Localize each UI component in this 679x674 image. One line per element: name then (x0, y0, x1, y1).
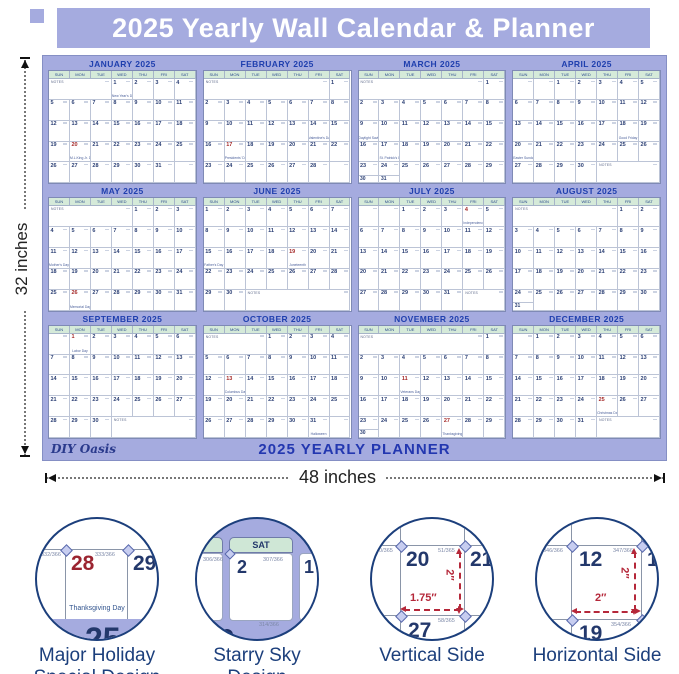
date-number: 6 (92, 228, 95, 234)
day-of-week-header: TUE (555, 198, 576, 206)
date-cell: 18 (267, 248, 288, 269)
measure-arrow-icon (571, 608, 577, 614)
date-cell: 29 (618, 290, 639, 311)
date-cell: 30 (639, 290, 660, 311)
empty-cell (175, 162, 196, 183)
date-cell: 11 (133, 355, 154, 376)
date-cell: 27 (288, 162, 309, 183)
date-cell: 1 (330, 79, 351, 100)
dimension-tick (20, 455, 30, 457)
date-cell: 8 (484, 355, 505, 376)
date-number: 24 (381, 418, 387, 424)
date-number: 6 (289, 100, 292, 106)
notes-label: NOTES (515, 207, 528, 211)
date-number: 24 (381, 163, 387, 169)
day-of-week-header: SAT (484, 198, 505, 206)
date-number: 6 (226, 355, 229, 361)
date-number: 9 (134, 100, 137, 106)
date-number: 13 (444, 121, 450, 127)
date-cell: 27 (513, 162, 534, 183)
date-number: 25 (402, 163, 408, 169)
date-number: 1 (268, 334, 271, 340)
date-cell: 21 (379, 269, 400, 290)
date-number: 20 (641, 376, 647, 382)
date-number: 13 (310, 228, 316, 234)
notes-cell: NOTES (246, 290, 351, 311)
date-cell: 22 (70, 396, 91, 417)
date-cell: 28 (112, 290, 133, 311)
measure-arrow-icon (631, 548, 637, 554)
calendar-poster: JANUARY 2025SUNMONTUEWEDTHUFRISATNOTES1N… (42, 55, 667, 461)
date-cell: 2 (421, 206, 442, 227)
date-cell: 6 (442, 355, 463, 376)
date-number: 7 (515, 355, 518, 361)
date-number: 3 (515, 228, 518, 234)
date-cell: 12 (154, 355, 175, 376)
cell-width-label: 1.75″ (410, 592, 437, 604)
arrow-down-icon (21, 446, 29, 454)
date-number: 18 (176, 121, 182, 127)
measure-arrow-icon (456, 548, 462, 554)
partial-date-number: 25 (85, 621, 121, 641)
date-number: 11 (331, 355, 337, 361)
date-number: 17 (226, 142, 232, 148)
date-cell: 8 (267, 355, 288, 376)
detail-circle-horizontal-side: 346/366 347/366 354/366 12 13 19 2″ 2″ (535, 517, 659, 641)
date-number: 25 (402, 418, 408, 424)
date-number: 10 (310, 355, 316, 361)
date-cell: 17 (309, 375, 330, 396)
date-number: 26 (289, 269, 295, 275)
date-cell: 9 (421, 227, 442, 248)
day-of-week-header: MON (534, 198, 555, 206)
day-of-week-header: SAT (639, 326, 660, 334)
date-number: 20 (444, 397, 450, 403)
date-number: 31 (444, 290, 450, 296)
date-number: 25 (268, 269, 274, 275)
day-of-week-header: TUE (246, 71, 267, 79)
date-cell: 14 (513, 375, 534, 396)
date-number: 16 (360, 397, 366, 403)
date-cell: 5 (639, 79, 660, 100)
empty-cell (359, 206, 380, 227)
date-cell: 17 (597, 121, 618, 142)
date-number: 21 (465, 142, 471, 148)
date-number: 23 (92, 397, 98, 403)
date-cell: 11 (267, 227, 288, 248)
date-number: 1 (113, 80, 116, 86)
date-cell: 12 (484, 227, 505, 248)
holiday-name-label: Columbus Day (225, 390, 245, 394)
date-cell: 4 (246, 100, 267, 121)
date-number: 25 (465, 269, 471, 275)
day-of-week-header: TUE (246, 198, 267, 206)
notes-label: NOTES (465, 291, 478, 295)
date-cell: 6 (225, 355, 246, 376)
date-number: 8 (134, 228, 137, 234)
date-cell: 31 (442, 290, 463, 311)
date-cell: 17 (154, 121, 175, 142)
holiday-name-label: M.L.King Jr. Day (70, 156, 90, 160)
date-number: 1 (486, 80, 489, 86)
date-number: 29 (71, 418, 77, 424)
notes-cell: NOTES (112, 417, 196, 438)
date-cell: 5 (49, 100, 70, 121)
date-cell: 4 (49, 227, 70, 248)
date-cell: 28 (597, 290, 618, 311)
date-number: 20 (406, 548, 429, 572)
date-number: 21 (536, 142, 542, 148)
date-number: 16 (641, 249, 647, 255)
date-cell: 7 (463, 355, 484, 376)
date-number: 3 (247, 207, 250, 213)
date-cell: 15 (484, 375, 505, 396)
date-number: 2 (360, 100, 363, 106)
date-number: 30 (423, 290, 429, 296)
date-cell: 19 (484, 248, 505, 269)
date-number: 3 (176, 207, 179, 213)
month-title: JUNE 2025 (203, 185, 352, 197)
date-number: 18 (51, 269, 57, 275)
date-number: 16 (205, 142, 211, 148)
feature-label: Starry Sky Design (182, 645, 332, 674)
date-number: 7 (465, 100, 468, 106)
date-number: 12 (579, 548, 602, 572)
product-image: 2025 Yearly Wall Calendar & Planner 32 i… (0, 0, 679, 674)
date-number: 27 (92, 290, 98, 296)
date-cell: 14 (379, 248, 400, 269)
date-cell: 7 (513, 355, 534, 376)
date-cell: 22 (484, 142, 505, 163)
date-number: 17 (444, 249, 450, 255)
date-cell: 21 (463, 396, 484, 417)
month-title: FEBRUARY 2025 (203, 58, 352, 70)
day-of-week-header: FRI (309, 326, 330, 334)
day-of-week-header: SUN (204, 198, 225, 206)
cell-width-label: 2″ (595, 592, 606, 604)
date-cell: 30 (555, 417, 576, 438)
date-cell: 26 (267, 162, 288, 183)
date-cell: 15 (330, 121, 351, 142)
day-of-year-label: 58/365 (438, 618, 455, 624)
date-number: 10 (444, 228, 450, 234)
grid-line (37, 549, 157, 550)
date-cell: 12 (204, 375, 225, 396)
date-cell: 13Columbus Day (225, 375, 246, 396)
date-number: 5 (641, 80, 644, 86)
date-number: 17 (176, 249, 182, 255)
holiday-date-number: 28 (71, 552, 94, 576)
date-number: 2 (237, 557, 247, 578)
date-cell: 21 (534, 142, 555, 163)
date-cell: 1 (204, 206, 225, 227)
grid-line (372, 615, 492, 616)
date-number: 9 (360, 376, 363, 382)
date-number: 16 (92, 376, 98, 382)
date-number: 8 (536, 355, 539, 361)
date-cell: 15 (618, 248, 639, 269)
date-number: 2 (360, 355, 363, 361)
day-of-week-header: FRI (154, 198, 175, 206)
day-of-week-header: SUN (359, 326, 380, 334)
date-cell: 25 (330, 396, 351, 417)
day-of-week-header: SUN (359, 71, 380, 79)
month-block: FEBRUARY 2025SUNMONTUEWEDTHUFRISATNOTES1… (203, 58, 352, 184)
date-cell: 9Daylight Saving (359, 121, 380, 142)
date-number: 13 (71, 121, 77, 127)
date-cell: 28 (534, 162, 555, 183)
date-number: 26 (71, 290, 77, 296)
month-block: SEPTEMBER 2025SUNMONTUEWEDTHUFRISAT1Labo… (48, 313, 197, 439)
date-cell: 19 (618, 375, 639, 396)
date-cell: 20 (91, 269, 112, 290)
date-number: 1 (620, 207, 623, 213)
date-cell: 27 (576, 290, 597, 311)
date-number: 15 (331, 121, 337, 127)
date-cell: 26 (421, 417, 442, 438)
month-grid: SUNMONTUEWEDTHUFRISAT1234567891011121314… (203, 197, 352, 311)
date-number: 22 (113, 142, 119, 148)
date-cell: 11 (175, 100, 196, 121)
date-number: 4 (402, 355, 405, 361)
date-number: 29 (113, 163, 119, 169)
date-cell: 18Good Friday (618, 121, 639, 142)
date-cell: 14 (91, 121, 112, 142)
date-cell: 18 (400, 142, 421, 163)
date-cell: 2431 (513, 290, 534, 311)
date-number: 20 (71, 142, 77, 148)
date-cell: 12 (421, 375, 442, 396)
measure-arrow-icon (458, 606, 464, 612)
date-cell: 15 (555, 121, 576, 142)
day-of-week-header: THU (288, 71, 309, 79)
date-cell: 1 (400, 206, 421, 227)
day-of-week-header: FRI (309, 71, 330, 79)
date-cell: 8 (330, 100, 351, 121)
date-cell: 11 (463, 227, 484, 248)
product-header-banner: 2025 Yearly Wall Calendar & Planner (57, 8, 650, 48)
date-cell: 21 (513, 396, 534, 417)
date-number: 21 (381, 269, 387, 275)
holiday-name-label: St. Patrick's Day (379, 156, 399, 160)
date-cell: 24 (246, 269, 267, 290)
measure-arrow-icon (400, 606, 406, 612)
date-cell: 27 (91, 290, 112, 311)
notes-cell: NOTES (49, 79, 112, 100)
date-cell: 10 (513, 248, 534, 269)
date-number: 5 (155, 334, 158, 340)
date-number: 3 (381, 355, 384, 361)
notes-cell: NOTES (597, 162, 660, 183)
date-number: 29 (134, 290, 140, 296)
day-of-week-header: THU (288, 198, 309, 206)
date-cell: 5 (618, 334, 639, 355)
month-grid: SUNMONTUEWEDTHUFRISATNOTES123456789Dayli… (358, 70, 507, 184)
date-number: 9 (641, 228, 644, 234)
date-cell: 11 (246, 121, 267, 142)
date-cell: 15 (400, 248, 421, 269)
day-of-year-label: 306/366 (203, 557, 223, 563)
date-cell: 7 (330, 206, 351, 227)
date-cell: 16 (91, 375, 112, 396)
month-grid: SUNMONTUEWEDTHUFRISAT1234Independence Da… (358, 197, 507, 311)
cell-height-label: 2″ (619, 567, 631, 578)
date-cell: 17 (112, 375, 133, 396)
day-of-week-header: SAT (330, 71, 351, 79)
partial-day-header (195, 537, 223, 553)
date-number: 14 (331, 228, 337, 234)
date-number: 1 (205, 207, 208, 213)
width-dimension-label: 48 inches (289, 467, 386, 488)
date-cell: 19 (267, 142, 288, 163)
date-number: 23 (578, 142, 584, 148)
date-cell: 8 (204, 227, 225, 248)
date-cell: 29 (133, 290, 154, 311)
date-cell: 5 (555, 227, 576, 248)
date-number: 6 (444, 355, 447, 361)
date-number: 16 (226, 249, 232, 255)
date-cell: 29 (267, 417, 288, 438)
date-cell: 23 (576, 142, 597, 163)
day-of-week-header: SAT (330, 326, 351, 334)
month-block: MAY 2025SUNMONTUEWEDTHUFRISATNOTES123456… (48, 185, 197, 311)
date-cell: 31Halloween (309, 417, 330, 438)
date-cell: 7 (309, 100, 330, 121)
date-cell: 25Christmas Day (597, 396, 618, 417)
notes-cell: NOTES (204, 79, 330, 100)
corner-accent (30, 9, 44, 23)
date-number: 1 (71, 334, 74, 340)
date-number: 3 (578, 334, 581, 340)
empty-cell (330, 162, 351, 183)
date-number: 22 (205, 269, 211, 275)
date-number: 24 (515, 290, 521, 296)
date-number: 25 (134, 397, 140, 403)
date-number: 11 (268, 228, 274, 234)
holiday-name-label: Veterans Day (400, 390, 420, 394)
date-cell: 16 (359, 396, 380, 417)
date-cell: 30 (421, 290, 442, 311)
date-number: 11 (247, 121, 253, 127)
date-number: 8 (557, 100, 560, 106)
date-cell: 10 (597, 100, 618, 121)
date-cell: 18 (246, 142, 267, 163)
date-number: 19 (620, 376, 626, 382)
date-cell: 6 (513, 100, 534, 121)
date-number: 15 (620, 249, 626, 255)
date-number: 7 (51, 355, 54, 361)
day-of-year-label: 332/366 (41, 552, 61, 558)
date-cell: 13 (513, 121, 534, 142)
notes-label: NOTES (361, 80, 374, 84)
holiday-name-label: Mother's Day (49, 263, 69, 267)
date-number: 29 (133, 552, 156, 576)
date-cell: 11Mother's Day (49, 248, 70, 269)
day-of-week-header: FRI (154, 326, 175, 334)
date-number: 16 (578, 121, 584, 127)
date-number: 19 (423, 142, 429, 148)
date-cell: 19 (555, 269, 576, 290)
month-title: NOVEMBER 2025 (358, 313, 507, 325)
day-of-week-header: MON (225, 71, 246, 79)
feature-label: Vertical Side (357, 645, 507, 667)
date-cell: 28 (309, 162, 330, 183)
date-number: 28 (599, 290, 605, 296)
date-cell: 18 (400, 396, 421, 417)
date-cell: 11 (618, 100, 639, 121)
date-number: 14 (310, 121, 316, 127)
date-number: 4 (465, 207, 468, 213)
date-number: 31 (176, 290, 182, 296)
date-number: 29 (486, 163, 492, 169)
date-cell: 16 (576, 121, 597, 142)
date-number: 22 (134, 269, 140, 275)
date-number: 26 (51, 163, 57, 169)
date-cell: 20 (442, 396, 463, 417)
date-cell: 18 (330, 375, 351, 396)
date-cell: 4 (175, 79, 196, 100)
date-number: 26 (557, 290, 563, 296)
date-cell: 15 (267, 375, 288, 396)
month-title: OCTOBER 2025 (203, 313, 352, 325)
date-cell: 3 (442, 206, 463, 227)
date-cell: 2 (555, 334, 576, 355)
date-cell: 5 (267, 100, 288, 121)
date-number: 14 (92, 121, 98, 127)
day-of-week-header: MON (225, 198, 246, 206)
date-cell: 25 (133, 396, 154, 417)
date-number: 1 (134, 207, 137, 213)
star-decoration-icon (221, 629, 233, 641)
date-number: 23 (557, 397, 563, 403)
date-number: 4 (247, 100, 250, 106)
date-number: 9 (423, 228, 426, 234)
partial-date-number: 13 (647, 548, 659, 572)
date-cell: 6 (309, 206, 330, 227)
date-number: 11 (402, 121, 408, 127)
date-cell: 19 (49, 142, 70, 163)
date-cell: 23 (639, 269, 660, 290)
date-number: 2 (641, 207, 644, 213)
date-cell: 6 (359, 227, 380, 248)
date-number: 13 (226, 376, 232, 382)
date-cell: 20 (175, 375, 196, 396)
date-number: 10 (381, 121, 387, 127)
date-cell: 23 (225, 269, 246, 290)
date-cell: 4 (400, 355, 421, 376)
date-number: 9 (205, 121, 208, 127)
date-cell: 22 (133, 269, 154, 290)
date-number: 21 (51, 397, 57, 403)
notes-cell: NOTES (204, 334, 267, 355)
date-number: 26 (423, 163, 429, 169)
date-cell: 24 (576, 396, 597, 417)
date-cell: 24 (112, 396, 133, 417)
date-number: 27 (176, 397, 182, 403)
date-number: 15 (268, 376, 274, 382)
date-number: 9 (92, 355, 95, 361)
date-number: 4 (134, 334, 137, 340)
day-of-year-label: 307/366 (263, 557, 283, 563)
date-cell: 25 (463, 269, 484, 290)
date-cell: 18 (175, 121, 196, 142)
date-number: 28 (465, 163, 471, 169)
date-number: 13 (360, 249, 366, 255)
date-cell: 26 (288, 269, 309, 290)
date-number: 15 (557, 121, 563, 127)
date-number: 26 (423, 418, 429, 424)
date-cell: 21 (597, 269, 618, 290)
